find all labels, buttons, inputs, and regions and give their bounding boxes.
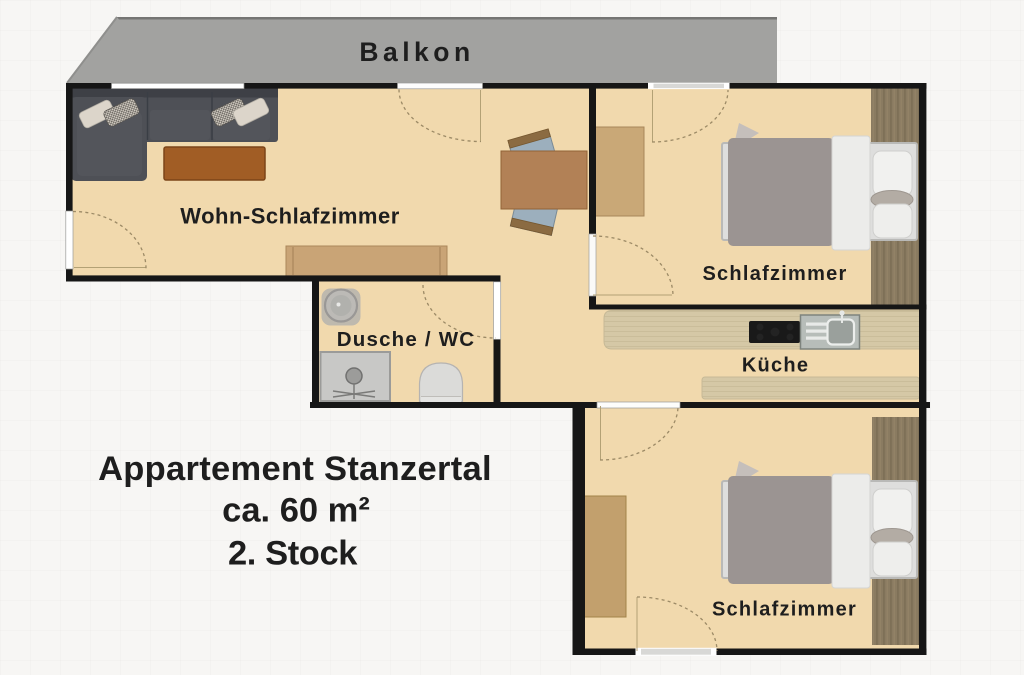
svg-text:Appartement Stanzertal: Appartement Stanzertal xyxy=(98,450,492,488)
svg-text:Schlafzimmer: Schlafzimmer xyxy=(712,599,857,621)
svg-text:Dusche / WC: Dusche / WC xyxy=(337,328,476,351)
svg-text:Küche: Küche xyxy=(742,355,809,377)
svg-text:Wohn-Schlafzimmer: Wohn-Schlafzimmer xyxy=(180,204,400,229)
svg-text:2. Stock: 2. Stock xyxy=(228,535,358,573)
svg-text:ca. 60 m²: ca. 60 m² xyxy=(222,492,370,530)
svg-text:Balkon: Balkon xyxy=(359,37,474,67)
svg-text:Schlafzimmer: Schlafzimmer xyxy=(702,263,847,285)
